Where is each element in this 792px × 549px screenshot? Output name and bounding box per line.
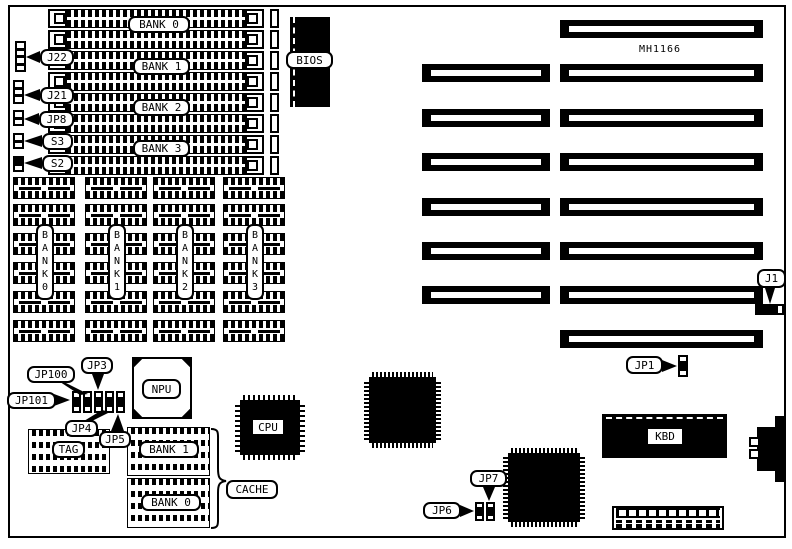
jumper-pin (106, 399, 113, 405)
simm-latch-left (48, 30, 67, 49)
jp5-label: JP5 (99, 431, 131, 448)
dram-dip-socket (153, 177, 215, 199)
s3-label: S3 (42, 133, 73, 150)
jumper-pin (14, 165, 23, 172)
s2-header (13, 156, 24, 172)
isa-slot-long (560, 64, 763, 82)
jumper-pin (16, 50, 25, 57)
jumper-pin (73, 406, 80, 412)
jp6-header (475, 502, 484, 521)
simm-slot (48, 114, 278, 133)
cache-label: CACHE (226, 480, 278, 499)
simm-bank1-label: BANK 1 (133, 58, 190, 75)
jumper-pin (117, 392, 124, 398)
jumper-pin (117, 406, 124, 412)
keyboard-connector-pin (749, 449, 760, 459)
jumper-pin (14, 119, 23, 126)
cpu-pins (300, 403, 305, 452)
simm-latch-right (245, 9, 264, 28)
jumper-pin (679, 363, 687, 369)
jumper-pin (16, 57, 25, 64)
jumper-pin (770, 305, 776, 314)
jp3-label: JP3 (81, 357, 113, 374)
qfp-pins (372, 443, 433, 448)
memory-socket (612, 506, 724, 530)
dram-bank1-label: B A N K 1 (108, 224, 126, 300)
qfp-pins (503, 456, 508, 519)
jumper-pin (487, 515, 494, 520)
cpu-label: CPU (252, 419, 284, 435)
jp6-label: JP6 (423, 502, 461, 519)
dram-bank0-label: B A N K 0 (36, 224, 54, 300)
j22-header (15, 41, 26, 72)
jumper-pin (106, 392, 113, 398)
qfp-pins (372, 372, 433, 377)
qfp-chip-2 (508, 453, 580, 522)
simm-bank2-label: BANK 2 (133, 99, 190, 116)
jumper-pin (777, 305, 783, 314)
jumper-pin (84, 399, 91, 405)
jumper-pin (95, 399, 102, 405)
npu-corner-notch (132, 408, 143, 419)
jp7-header (486, 502, 495, 521)
jp101-header (72, 391, 81, 413)
jp101-label: JP101 (7, 392, 56, 409)
simm-endcap (270, 114, 279, 133)
qfp-pins (364, 380, 369, 440)
s3-header (13, 133, 24, 149)
cache-bank1-label: BANK 1 (139, 441, 199, 458)
isa-slot-short (422, 153, 550, 171)
qfp-chip-1 (369, 377, 436, 443)
jp3-header (94, 391, 103, 413)
dram-bank2-label: B A N K 2 (176, 224, 194, 300)
simm-latch-right (245, 30, 264, 49)
isa-slot-short (422, 286, 550, 304)
jumper-pin (14, 111, 23, 118)
jp1-header (678, 355, 688, 377)
isa-slot-short (422, 64, 550, 82)
jumper-pin (117, 399, 124, 405)
simm-bank3-label: BANK 3 (133, 140, 190, 157)
cpu-pins (243, 455, 297, 460)
simm-endcap (270, 72, 279, 91)
jp4-header (105, 391, 114, 413)
isa-slot-long (560, 242, 763, 260)
dram-dip-socket (85, 177, 147, 199)
isa-slot-long (560, 109, 763, 127)
jumper-pin (14, 81, 23, 88)
jumper-pin (95, 392, 102, 398)
jumper-pin (14, 134, 23, 141)
isa-slot-long (560, 20, 763, 38)
jp5-header (116, 391, 125, 413)
dram-dip-socket (153, 204, 215, 226)
chipset-name: MH1166 (628, 44, 692, 55)
cpu-pins (243, 395, 297, 400)
isa-slot-long (560, 198, 763, 216)
jumper-pin (14, 157, 23, 164)
j21-label: J21 (40, 87, 74, 104)
simm-slot (48, 156, 278, 175)
jp1-label: JP1 (626, 356, 663, 374)
jumper-pin (476, 503, 483, 508)
jumper-pin (756, 305, 762, 314)
jp100-header (83, 391, 92, 413)
dram-dip-socket (85, 204, 147, 226)
simm-slot-body (67, 156, 245, 175)
qfp-pins (436, 380, 441, 440)
dram-dip-socket (13, 204, 75, 226)
jumper-pin (14, 89, 23, 96)
tag-label: TAG (52, 441, 85, 458)
qfp-pins (511, 522, 577, 527)
jumper-pin (16, 42, 25, 49)
jumper-pin (84, 392, 91, 398)
jumper-pin (487, 509, 494, 514)
simm-bank0-label: BANK 0 (128, 16, 190, 33)
jumper-pin (763, 305, 769, 314)
cache-bank0-label: BANK 0 (141, 494, 201, 511)
cpu-pins (235, 403, 240, 452)
isa-slot-short (422, 109, 550, 127)
isa-slot-long (560, 330, 763, 348)
simm-latch-right (245, 156, 264, 175)
jp100-label: JP100 (27, 366, 75, 383)
simm-slot-body (67, 114, 245, 133)
qfp-pins (511, 448, 577, 453)
jumper-pin (476, 509, 483, 514)
simm-latch-right (245, 114, 264, 133)
s2-label: S2 (42, 155, 73, 172)
jumper-pin (14, 96, 23, 103)
jumper-pin (487, 503, 494, 508)
dram-dip-socket (223, 177, 285, 199)
motherboard-diagram: { "colors": {"ink": "#000000", "paper": … (0, 0, 792, 549)
keyboard-connector (775, 416, 786, 482)
simm-latch-right (245, 93, 264, 112)
isa-slot-long (560, 286, 763, 304)
simm-endcap (270, 30, 279, 49)
isa-slot-short (422, 198, 550, 216)
npu-label: NPU (142, 379, 181, 399)
qfp-pins (580, 456, 585, 519)
j1-header (755, 304, 784, 315)
jumper-pin (73, 399, 80, 405)
simm-endcap (270, 93, 279, 112)
dram-dip-socket (13, 177, 75, 199)
simm-endcap (270, 9, 279, 28)
jp8-header (13, 110, 24, 126)
j21-header (13, 80, 24, 104)
dram-dip-socket (13, 320, 75, 342)
jumper-pin (84, 406, 91, 412)
jumper-pin (679, 356, 687, 362)
dram-dip-socket (153, 320, 215, 342)
dram-dip-socket (223, 320, 285, 342)
jumper-pin (73, 392, 80, 398)
simm-endcap (270, 51, 279, 70)
jumper-pin (95, 406, 102, 412)
memory-socket-dashes (616, 520, 720, 523)
simm-latch-right (245, 51, 264, 70)
simm-endcap (270, 156, 279, 175)
simm-latch-right (245, 135, 264, 154)
simm-latch-right (245, 72, 264, 91)
dram-bank3-label: B A N K 3 (246, 224, 264, 300)
isa-slot-short (422, 242, 550, 260)
keyboard-connector-pin (749, 437, 760, 447)
jp8-label: JP8 (39, 111, 74, 128)
memory-socket-pads (616, 524, 720, 528)
isa-slot-long (560, 153, 763, 171)
kbd-label: KBD (647, 428, 683, 445)
memory-socket-cells (616, 508, 720, 518)
jp4-label: JP4 (65, 420, 98, 437)
jumper-pin (16, 65, 25, 72)
npu-corner-notch (181, 357, 192, 368)
j22-label: J22 (40, 49, 74, 66)
dram-dip-socket (223, 204, 285, 226)
jumper-pin (679, 370, 687, 376)
npu-corner-notch (132, 357, 143, 368)
jumper-pin (106, 406, 113, 412)
simm-endcap (270, 135, 279, 154)
npu-corner-notch (181, 408, 192, 419)
j1-label: J1 (757, 269, 786, 288)
jp7-label: JP7 (470, 470, 507, 487)
jumper-pin (476, 515, 483, 520)
dram-dip-socket (85, 320, 147, 342)
jumper-pin (14, 142, 23, 149)
simm-latch-left (48, 9, 67, 28)
bios-label: BIOS (286, 51, 333, 69)
